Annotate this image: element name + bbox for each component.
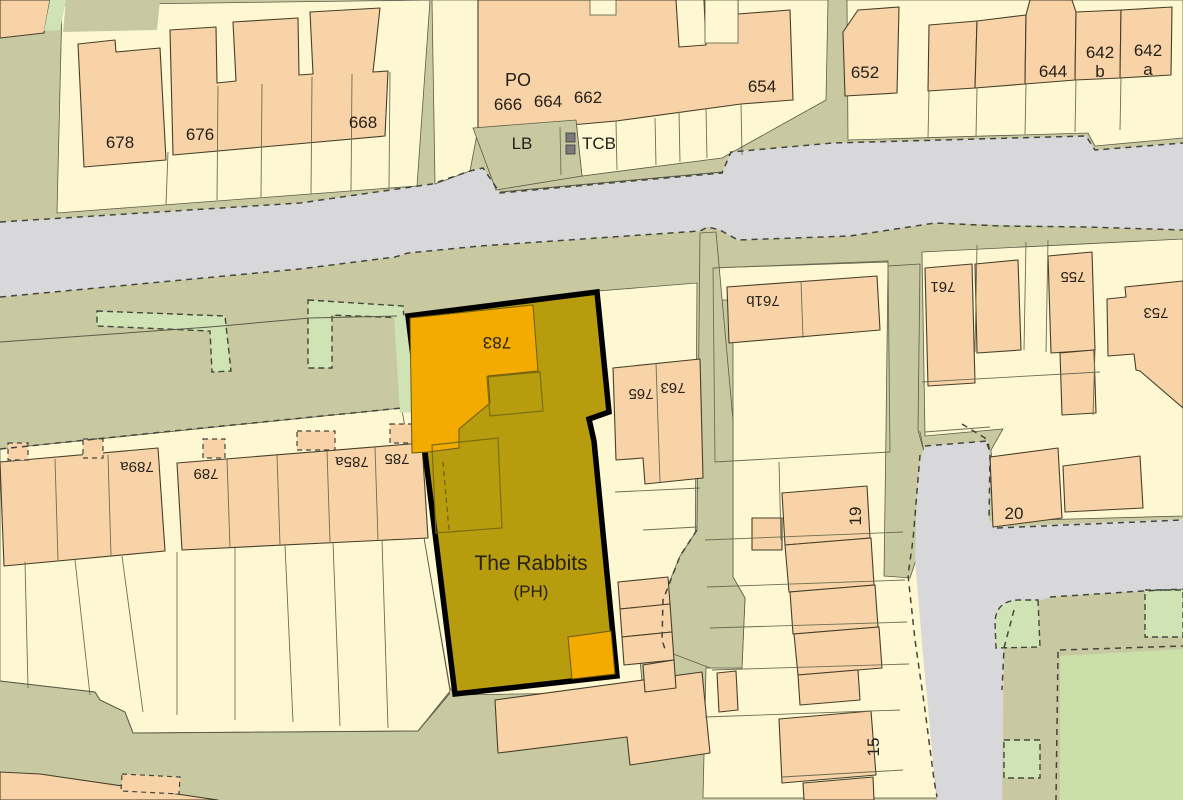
label-19: 19 [846, 507, 865, 526]
tcb-marker-icon [566, 145, 575, 154]
label-783: 783 [483, 333, 511, 352]
label-785a: 785a [335, 453, 369, 470]
label-789: 789 [193, 465, 218, 482]
label-676: 676 [186, 125, 214, 144]
label-761: 761 [930, 278, 955, 295]
label-644: 644 [1039, 62, 1067, 81]
label-654: 654 [748, 77, 776, 96]
building-755 [1048, 252, 1095, 353]
label-642a-1: 642 [1134, 41, 1162, 60]
label-765: 765 [628, 385, 653, 402]
label-755: 755 [1060, 268, 1085, 285]
label-763: 763 [660, 379, 685, 396]
site-outbuilding [568, 631, 615, 679]
building-20 [990, 448, 1062, 527]
label-666: 666 [494, 95, 522, 114]
label-662: 662 [574, 88, 602, 107]
map-canvas: 678 676 668 PO 666 664 662 654 LB TCB 65… [0, 0, 1183, 800]
corner-building [0, 0, 50, 38]
label-tcb: TCB [582, 134, 616, 153]
label-642a-2: a [1143, 60, 1153, 79]
label-po: PO [505, 70, 531, 90]
label-20: 20 [1005, 504, 1024, 523]
map: 678 676 668 PO 666 664 662 654 LB TCB 65… [0, 0, 1183, 800]
label-789a: 789a [120, 458, 154, 475]
label-642b-2: b [1095, 62, 1104, 81]
label-642b-1: 642 [1086, 43, 1114, 62]
lb-marker-icon [566, 133, 575, 142]
label-664: 664 [534, 92, 562, 111]
label-668: 668 [349, 113, 377, 132]
label-761b: 761b [746, 292, 779, 309]
label-652: 652 [851, 63, 879, 82]
label-753: 753 [1143, 304, 1168, 321]
site-name-label: The Rabbits [474, 552, 587, 575]
site-type-label: (PH) [514, 582, 549, 601]
label-lb: LB [512, 134, 533, 153]
label-678: 678 [106, 133, 134, 152]
label-15: 15 [864, 738, 883, 757]
label-785: 785 [384, 450, 409, 467]
building-652 [843, 7, 899, 96]
